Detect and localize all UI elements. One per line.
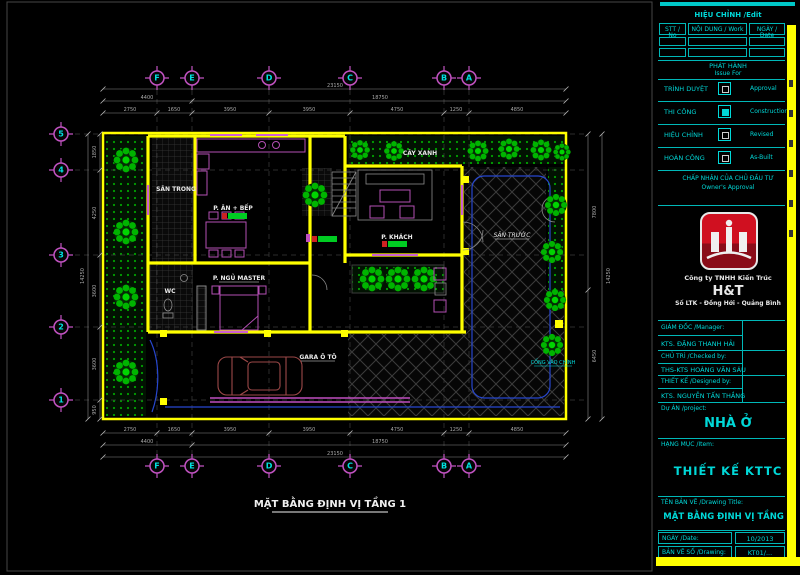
svg-text:4400: 4400 xyxy=(141,439,154,445)
grid-bubble-F-bottom: F xyxy=(145,454,169,478)
title-block: HIỆU CHỈNH /Edit STT / No NỘI DUNG / Wor… xyxy=(656,0,800,575)
issue-row-en: Construction xyxy=(750,109,788,115)
grid-bubble-3: 3 xyxy=(49,243,73,267)
rev-cell[interactable] xyxy=(688,48,747,57)
svg-text:D: D xyxy=(266,74,273,83)
grid-bubble-B-bottom: B xyxy=(432,454,456,478)
grid-bubble-B-top: B xyxy=(432,66,456,90)
svg-text:4400: 4400 xyxy=(141,95,154,101)
rev-cell[interactable] xyxy=(688,37,747,46)
rev-cell[interactable] xyxy=(749,48,785,57)
greenery-label: CÂY XANH xyxy=(403,150,437,157)
project-label: Dự ÁN /project: xyxy=(661,406,707,412)
svg-text:3600: 3600 xyxy=(92,358,98,371)
svg-text:A: A xyxy=(466,74,473,83)
dims-top: 2750 1650 3950 3950 4750 1250 4850 4400 … xyxy=(101,83,569,116)
svg-text:3600: 3600 xyxy=(92,285,98,298)
svg-text:E: E xyxy=(189,74,194,83)
plan-caption: MẶT BẰNG ĐỊNH VỊ TẦNG 1 xyxy=(254,495,406,510)
svg-text:14250: 14250 xyxy=(80,268,86,284)
issue-title: PHÁT HÀNH xyxy=(656,63,800,70)
svg-text:4850: 4850 xyxy=(511,107,524,113)
logo-emblem xyxy=(702,214,756,268)
checker-name: THS-KTS HOÀNG VĂN SÁU xyxy=(661,367,746,374)
svg-text:3950: 3950 xyxy=(303,107,316,113)
company-brand: H&T xyxy=(656,284,800,299)
inner-yard-floor xyxy=(152,138,193,262)
svg-text:2750: 2750 xyxy=(124,107,137,113)
svg-text:1650: 1650 xyxy=(168,427,181,433)
manager-name: KTS. ĐẶNG THANH HẢI xyxy=(661,341,735,348)
company-name: Công ty TNHH Kiến Trúc xyxy=(656,275,800,282)
svg-text:6450: 6450 xyxy=(592,350,598,363)
svg-text:1850: 1850 xyxy=(92,146,98,159)
svg-text:C: C xyxy=(347,74,353,83)
svg-text:3950: 3950 xyxy=(224,427,237,433)
bedroom-label: P. NGỦ MASTER xyxy=(213,274,266,282)
svg-text:A: A xyxy=(466,462,473,471)
svg-text:4850: 4850 xyxy=(511,427,524,433)
rev-cell[interactable] xyxy=(749,37,785,46)
svg-text:B: B xyxy=(441,74,447,83)
asbuilt-checkbox[interactable] xyxy=(718,151,731,164)
grid-bubble-1: 1 xyxy=(49,388,73,412)
svg-text:4250: 4250 xyxy=(92,207,98,220)
grid-bubble-A-top: A xyxy=(457,66,481,90)
svg-text:5: 5 xyxy=(58,130,64,139)
wc-floor xyxy=(150,265,193,331)
frame-bottom-bar xyxy=(656,557,800,566)
owner-approval-en: Owner's Approval xyxy=(656,185,800,191)
project-value: NHÀ Ở xyxy=(656,416,800,431)
svg-text:F: F xyxy=(154,74,159,83)
inner-yard-label: SÂN TRONG xyxy=(156,186,196,193)
issue-row-vi: TRÌNH DUYỆT xyxy=(664,86,708,93)
grid-bubble-4: 4 xyxy=(49,158,73,182)
designer-name: KTS. NGUYỄN TẤN THẮNG xyxy=(661,393,745,400)
grid-bubble-C-bottom: C xyxy=(338,454,362,478)
date-value-cell: 10/2013 xyxy=(735,532,785,544)
svg-text:18750: 18750 xyxy=(372,95,388,101)
svg-text:950: 950 xyxy=(92,405,98,415)
living-label: P. KHÁCH xyxy=(381,234,412,241)
designer-role: THIẾT KẾ /Designed by: xyxy=(661,379,731,385)
svg-text:3950: 3950 xyxy=(224,107,237,113)
rev-cell[interactable] xyxy=(659,37,686,46)
rev-col-work: NỘI DUNG / Work xyxy=(688,23,747,35)
dims-right: 7800 6450 14250 xyxy=(586,132,613,422)
svg-text:1650: 1650 xyxy=(168,107,181,113)
svg-text:23150: 23150 xyxy=(327,83,343,89)
planter-row xyxy=(352,265,444,293)
grid-bubble-A-bottom: A xyxy=(457,454,481,478)
svg-text:7800: 7800 xyxy=(592,206,598,219)
issue-row-en: Revised xyxy=(750,132,773,138)
company-logo xyxy=(700,212,758,270)
bedroom-furniture xyxy=(197,286,266,330)
svg-text:3950: 3950 xyxy=(303,427,316,433)
grid-bubble-F-top: F xyxy=(145,66,169,90)
item-value: THIẾT KẾ KTTC xyxy=(656,464,800,478)
issue-row-vi: THI CÔNG xyxy=(664,109,696,116)
floor-plan-canvas[interactable]: P. ĂN + BẾP P. KHÁCH P. NGỦ MASTER WC GA… xyxy=(0,0,656,575)
grid-bubble-D-top: D xyxy=(257,66,281,90)
grid-bubble-2: 2 xyxy=(49,315,73,339)
svg-text:1: 1 xyxy=(58,396,64,405)
dims-left: 1850 4250 3600 3600 950 14250 xyxy=(80,132,103,422)
kitchen-label: P. ĂN + BẾP xyxy=(213,204,253,212)
drawing-title-label: TÊN BẢN VẼ /Drawing Title: xyxy=(661,500,743,506)
main-gate-label: CỔNG VÀO CHÍNH xyxy=(531,358,576,366)
date-label-cell: NGÀY /Date: xyxy=(658,532,732,544)
svg-text:1250: 1250 xyxy=(450,107,463,113)
cad-workspace: P. ĂN + BẾP P. KHÁCH P. NGỦ MASTER WC GA… xyxy=(0,0,800,575)
svg-text:F: F xyxy=(154,462,159,471)
svg-text:18750: 18750 xyxy=(372,439,388,445)
manager-role: GIÁM ĐỐC /Manager: xyxy=(661,325,724,331)
svg-text:1250: 1250 xyxy=(450,427,463,433)
grid-bubble-E-bottom: E xyxy=(180,454,204,478)
frame-right-bar xyxy=(787,25,796,558)
rev-col-no: STT / No xyxy=(659,23,686,35)
svg-text:2750: 2750 xyxy=(124,427,137,433)
light-well-plant xyxy=(303,183,328,208)
checker-role: CHỦ TRÌ /Checked by: xyxy=(661,354,726,360)
issue-row-vi: HOÀN CÔNG xyxy=(664,155,705,162)
car xyxy=(218,357,302,395)
approval-checkbox[interactable] xyxy=(718,82,731,95)
rev-cell[interactable] xyxy=(659,48,686,57)
issue-row-en: As-Built xyxy=(750,155,773,161)
issue-row-en: Approval xyxy=(750,86,777,92)
company-address: Số LTK - Đồng Hới - Quảng Bình xyxy=(656,301,800,307)
kitchen-furniture xyxy=(197,139,305,257)
svg-text:C: C xyxy=(347,462,353,471)
front-yard-label: SÂN TRƯỚC xyxy=(494,232,532,239)
owner-approval-vi: CHẤP NHẬN CỦA CHỦ ĐẦU TƯ xyxy=(656,176,800,182)
grid-bubble-5: 5 xyxy=(49,122,73,146)
titleblock-top-bar xyxy=(660,2,795,6)
item-label: HẠNG MỤC /Item: xyxy=(661,442,714,448)
svg-text:2: 2 xyxy=(58,323,64,332)
svg-text:D: D xyxy=(266,462,273,471)
garage-label: GARA Ô TÔ xyxy=(299,354,336,361)
grid-bubble-E-top: E xyxy=(180,66,204,90)
svg-text:14250: 14250 xyxy=(606,268,612,284)
edit-header: HIỆU CHỈNH /Edit xyxy=(656,12,800,19)
svg-text:4750: 4750 xyxy=(391,427,404,433)
svg-text:4: 4 xyxy=(58,166,64,175)
svg-text:3: 3 xyxy=(58,251,64,260)
issue-subtitle: Issue For xyxy=(656,71,800,77)
grid-bubble-D-bottom: D xyxy=(257,454,281,478)
rev-col-date: NGÀY / Date xyxy=(749,23,785,35)
issue-row-vi: HIỆU CHỈNH xyxy=(664,132,703,139)
wc-label: WC xyxy=(164,288,176,295)
construction-checkbox[interactable] xyxy=(718,105,731,118)
svg-text:E: E xyxy=(189,462,194,471)
svg-text:4750: 4750 xyxy=(391,107,404,113)
revised-checkbox[interactable] xyxy=(718,128,731,141)
svg-text:23150: 23150 xyxy=(327,451,343,457)
svg-text:B: B xyxy=(441,462,447,471)
living-furniture xyxy=(358,170,432,220)
dims-bottom: 2750 1650 3950 3950 4750 1250 4850 4400 … xyxy=(101,427,569,460)
drawing-title-value: MẶT BẰNG ĐỊNH VỊ TẦNG 1 xyxy=(656,512,800,522)
